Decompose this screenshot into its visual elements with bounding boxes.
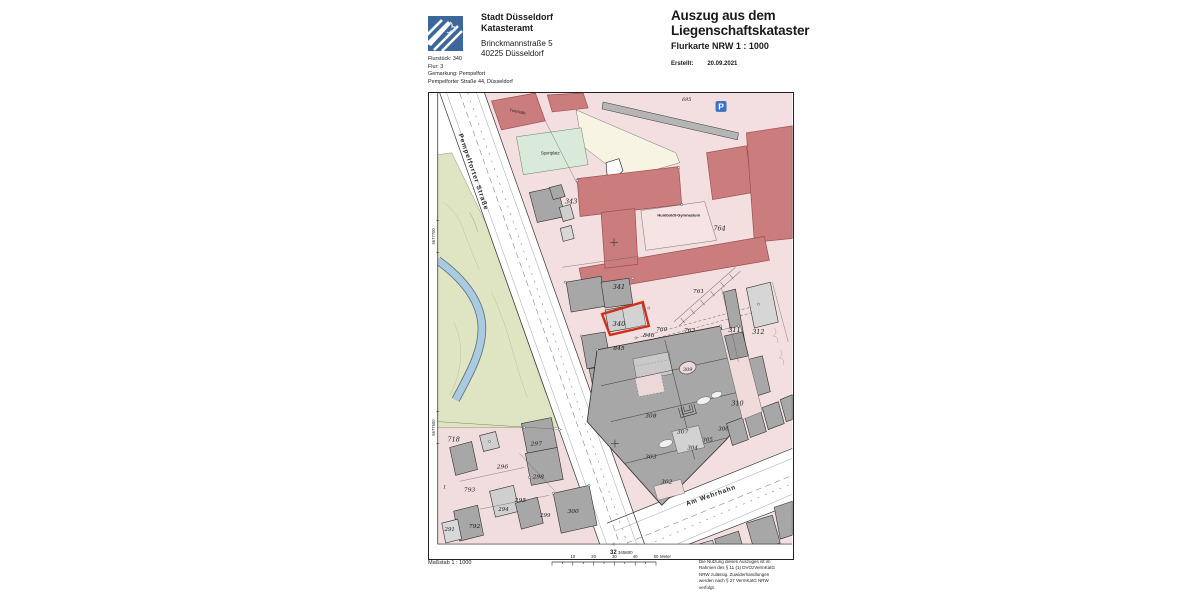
map-label-291: 291 [443, 527, 454, 533]
meta-flur: Flur: 3 [428, 64, 513, 72]
svg-text:50: 50 [654, 554, 659, 559]
map-label-761: 761 [693, 288, 704, 295]
svg-text:Meter: Meter [660, 554, 672, 559]
map-frame: P 69534334134076476176084676384531131230… [428, 92, 794, 560]
map-label-695: 695 [682, 97, 691, 103]
map-label-343: 343 [565, 198, 577, 206]
map-label-310: 310 [731, 400, 743, 408]
map-label-298: 298 [532, 473, 545, 480]
map-label-humboldt-gymnasium: Humboldt-Gymnasium [657, 212, 700, 217]
map-label-294: 294 [497, 507, 509, 513]
parking-icon: P [716, 101, 727, 112]
issuing-office: Stadt Düsseldorf Katasteramt [481, 12, 553, 34]
map-label-296: 296 [496, 463, 509, 470]
cadastral-extract-page: Stadt Düsseldorf Katasteramt Brinckmanns… [0, 0, 1200, 600]
legal-line: verfolgt. [699, 585, 793, 591]
map-label-1: 1 [443, 484, 446, 490]
title-line1: Auszug aus dem [671, 8, 809, 23]
svg-text:P: P [718, 102, 724, 112]
svg-text:40: 40 [633, 554, 638, 559]
office-street: Brinckmannstraße 5 [481, 39, 553, 49]
map-label-718: 718 [447, 436, 459, 444]
scale-label: Maßstab 1 : 1000 [428, 560, 472, 566]
map-label-303: 303 [645, 453, 657, 460]
meta-flurstueck: Flurstück: 340 [428, 56, 513, 64]
map-label-340: 340 [613, 320, 627, 328]
created-label: Erstellt: [671, 61, 693, 67]
meta-adresse: Pempelforter Straße 44, Düsseldorf [428, 79, 513, 87]
svg-text:10: 10 [570, 554, 575, 559]
map-label-846: 846 [643, 332, 655, 339]
gymnasium-right-block [746, 126, 792, 243]
map-label-305: 305 [702, 438, 713, 444]
map-label-312: 312 [752, 328, 764, 336]
map-label-341: 341 [613, 283, 625, 291]
map-label-306: 306 [718, 427, 729, 433]
document-title: Auszug aus dem Liegenschaftskataster [671, 8, 809, 38]
map-label-5677600: 5677600 [431, 419, 436, 436]
map-label-793: 793 [464, 486, 476, 493]
map-label-308: 308 [645, 413, 657, 420]
map-label-307: 307 [677, 429, 689, 436]
map-label-302: 302 [661, 478, 673, 485]
map-label-295: 295 [514, 497, 527, 504]
scale-bar: 1020304050Meter [544, 549, 694, 571]
svg-text:30: 30 [612, 554, 617, 559]
gymnasium-west-connector [601, 209, 638, 269]
map-label-763: 763 [684, 327, 696, 334]
legal-notice: Die Nutzung dieses Auszuges ist im Rahme… [699, 559, 793, 591]
parcel-meta-block: Flurstück: 340 Flur: 3 Gemarkung: Pempel… [428, 56, 513, 86]
meta-gemarkung: Gemarkung: Pempelfort [428, 71, 513, 79]
map-label-845: 845 [613, 345, 625, 352]
map-label-311: 311 [728, 326, 740, 334]
map-label-sportplatz: Sportplatz [541, 151, 560, 156]
created-row: Erstellt: 20.09.2021 [671, 61, 737, 67]
duesseldorf-city-logo [428, 16, 463, 51]
created-date: 20.09.2021 [707, 61, 737, 67]
gymnasium-east-arm [707, 146, 753, 200]
map-label-300: 300 [567, 508, 579, 515]
map-label-792: 792 [469, 523, 481, 530]
map-label-5677700: 5677700 [431, 228, 436, 245]
cadastral-map: P 69534334134076476176084676384531131230… [429, 93, 793, 559]
document-subtitle: Flurkarte NRW 1 : 1000 [671, 41, 769, 51]
map-label-760: 760 [656, 326, 668, 333]
svg-text:20: 20 [591, 554, 596, 559]
office-name-line2: Katasteramt [481, 23, 553, 34]
map-label-764: 764 [713, 224, 725, 232]
map-label-309: 309 [683, 367, 693, 373]
title-line2: Liegenschaftskataster [671, 23, 809, 38]
map-label-299: 299 [539, 513, 551, 519]
map-label-304: 304 [687, 445, 698, 451]
map-label-297: 297 [530, 440, 543, 447]
office-name-line1: Stadt Düsseldorf [481, 12, 553, 23]
